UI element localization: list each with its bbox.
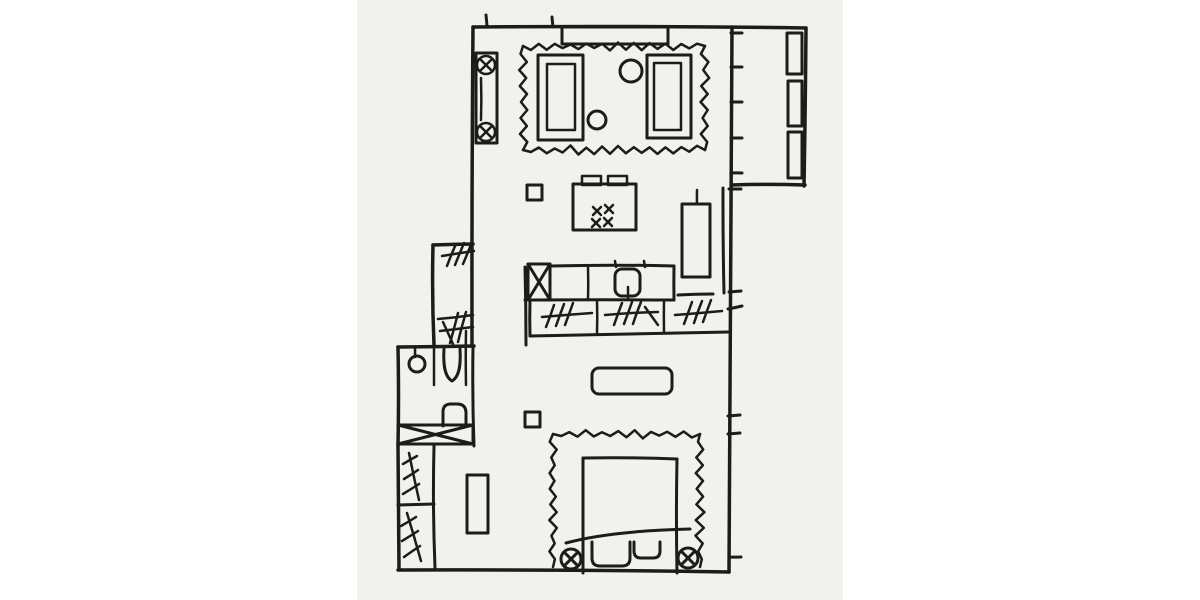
closet-right-wall xyxy=(433,446,435,568)
wall-tick-2 xyxy=(729,291,741,292)
bed xyxy=(583,458,677,459)
nook-left-wall xyxy=(433,245,434,345)
balcony-bottom-wall xyxy=(732,184,805,185)
balcony-right-wall xyxy=(804,28,806,186)
kitchen-inner-wall xyxy=(723,188,724,293)
sink-tick-right xyxy=(644,261,645,267)
wall-tick-4 xyxy=(728,415,740,416)
kitchen-peninsula-wall xyxy=(525,267,526,345)
closet-shelf-divider xyxy=(398,504,434,505)
floor-plan-sketch xyxy=(0,0,1200,600)
nook-top-wall xyxy=(433,244,473,245)
closet-left-wall xyxy=(398,446,399,569)
cabinet-under-fridge xyxy=(678,294,713,295)
top-wall-tick-b xyxy=(552,17,553,27)
counter-top-edge xyxy=(550,265,674,266)
left-wall xyxy=(472,27,473,346)
sink-tick-left xyxy=(615,261,616,267)
top-wall-tick-a xyxy=(486,15,487,26)
wall-tick-5 xyxy=(728,433,740,434)
floor-plan-page xyxy=(0,0,1200,600)
bathroom-top-wall xyxy=(398,346,474,347)
